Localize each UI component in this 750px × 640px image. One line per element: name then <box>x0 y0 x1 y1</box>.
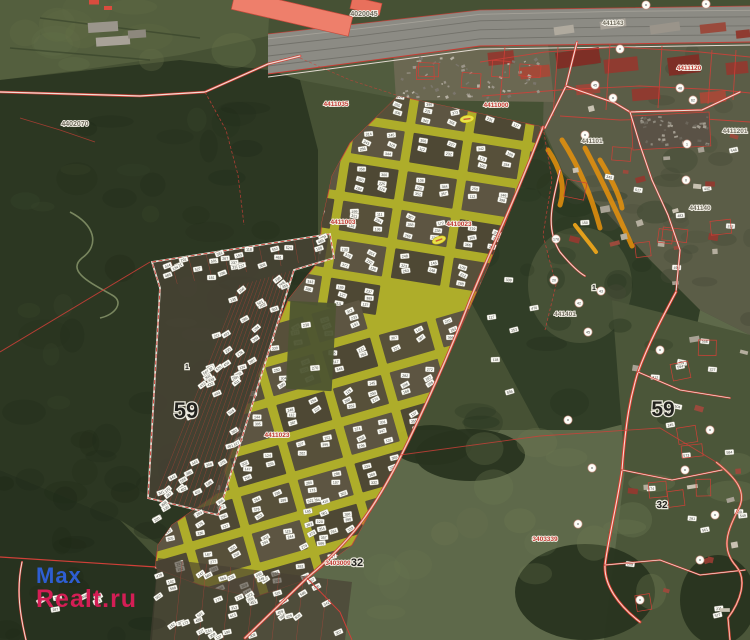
parcel-number: 267 <box>222 257 228 262</box>
parcel-tag: 314 <box>364 131 373 137</box>
parcel-number: 549 <box>740 514 746 519</box>
poi-marker-dot <box>567 419 569 421</box>
parcel-number: 232 <box>446 152 452 156</box>
poi-marker: 1 <box>683 140 691 148</box>
garage-roof <box>697 139 701 142</box>
parcel-number: 187 <box>205 552 211 557</box>
forest-texture <box>661 168 681 181</box>
parcel-tag: 245 <box>387 132 396 138</box>
building <box>89 0 99 5</box>
parcel-tag: 136 <box>373 226 382 232</box>
poi-marker-dot <box>612 97 614 99</box>
poi-marker <box>574 520 582 528</box>
forest-texture <box>10 19 41 46</box>
house-roof <box>705 181 715 186</box>
parcel-number: 366 <box>465 243 471 248</box>
parcel-number: 291 <box>689 517 695 522</box>
parcel-number: 389 <box>366 296 372 300</box>
poi-marker-dot <box>577 523 579 525</box>
parcel-tag: 108 <box>416 177 425 183</box>
poi-marker: 48 <box>676 84 684 92</box>
parcel-number: 357 <box>321 535 327 540</box>
forest-texture <box>134 522 167 540</box>
parcel-tag: 107 <box>331 480 340 485</box>
parcel-tag: 248 <box>400 253 409 259</box>
parcel-tag: 344 <box>383 151 392 157</box>
forest-texture <box>682 245 698 254</box>
forest-texture <box>632 258 652 272</box>
parcel-number: 300 <box>381 173 387 177</box>
forest-texture <box>156 129 193 144</box>
parcel-number: 272 <box>427 368 433 372</box>
forest-texture <box>90 501 118 522</box>
parcel-number: 314 <box>365 132 371 137</box>
parcel-tag: 524 <box>284 245 293 250</box>
forest-texture <box>53 486 77 510</box>
forest-texture <box>117 164 150 177</box>
parcel-number: 111 <box>377 213 383 217</box>
forest-texture <box>526 337 567 351</box>
poi-marker <box>656 346 664 354</box>
forest-texture <box>546 448 588 466</box>
poi-marker-dot <box>659 349 661 351</box>
parcel-number: 108 <box>418 179 424 183</box>
forest-texture <box>692 277 717 286</box>
parcel-number: 483 <box>677 214 683 218</box>
house-roof <box>720 608 730 612</box>
house-roof <box>413 66 417 69</box>
parcel-tag: 339 <box>504 277 513 283</box>
parcel-number: 339 <box>506 278 512 282</box>
forest-texture <box>367 605 406 620</box>
parcel-number: 282 <box>402 374 408 378</box>
parcel-number: 237 <box>231 261 237 265</box>
parcel-tag: 483 <box>676 213 685 219</box>
parcel-tag: 130 <box>340 246 349 252</box>
forest-texture <box>85 450 116 462</box>
quarter-code-label: 441140 <box>689 205 711 212</box>
parcel-tag: 291 <box>687 515 696 521</box>
house-roof <box>735 468 741 474</box>
forest-texture <box>455 403 497 419</box>
quarter-code-label: 3403009 <box>325 560 351 567</box>
forest-texture <box>231 140 263 157</box>
parcel-number: 112 <box>289 413 295 417</box>
poi-marker-dot <box>714 514 716 516</box>
house-roof <box>477 84 480 87</box>
poi-marker-dot <box>709 429 711 431</box>
building <box>128 29 147 38</box>
parcel-tag: 148 <box>429 260 439 266</box>
poi-marker-dot <box>699 559 701 561</box>
parcel-tag: 549 <box>738 513 747 519</box>
parcel-number: 262 <box>299 452 305 456</box>
poi-marker-dot <box>639 599 641 601</box>
poi-marker <box>588 464 596 472</box>
forest-texture <box>72 459 98 486</box>
building <box>89 0 99 5</box>
parcel-tag: 250 <box>470 186 479 192</box>
parcel-number: 245 <box>388 133 394 138</box>
poi-marker <box>636 596 644 604</box>
house-roof <box>407 72 411 73</box>
building <box>736 29 750 38</box>
poi-marker <box>696 556 704 564</box>
house-roof <box>735 468 741 474</box>
house-roof <box>467 95 470 98</box>
poi-marker-dot <box>645 4 647 6</box>
parcel-number: 524 <box>286 246 292 250</box>
parcel-number: 181 <box>209 276 215 280</box>
parcel-number: 120 <box>317 520 323 524</box>
district-label: 32 <box>656 500 668 511</box>
parcel-number: 344 <box>385 152 391 157</box>
parcel-tag: 118 <box>283 528 293 534</box>
parcel-number: 118 <box>246 248 252 252</box>
building <box>128 29 147 38</box>
garage-roof <box>706 116 708 118</box>
parcel-number: 266 <box>359 147 365 152</box>
parcel-tag: 150 <box>580 220 589 226</box>
house-roof <box>663 156 670 160</box>
garage-roof <box>668 125 670 128</box>
building <box>725 61 748 75</box>
parcel-number: 395 <box>255 422 261 426</box>
building <box>88 21 119 33</box>
house-roof <box>623 170 629 174</box>
parcel-number: 392 <box>297 564 303 569</box>
forest-texture <box>140 173 165 197</box>
garage-roof <box>658 116 662 118</box>
garage-roof <box>662 138 665 141</box>
poi-marker <box>642 1 650 9</box>
forest-texture <box>59 536 95 549</box>
poi-marker <box>564 416 572 424</box>
parcel-number: 248 <box>402 254 408 259</box>
forest-texture <box>2 400 46 425</box>
parcel-number: 263 <box>403 269 409 274</box>
poi-marker-dot <box>584 134 586 136</box>
poi-marker-dot <box>619 48 621 50</box>
parcel-tag: 384 <box>440 184 449 190</box>
forest-texture <box>200 130 218 163</box>
poi-marker-dot <box>684 469 686 471</box>
house-roof <box>507 90 510 91</box>
parcel-number: 584 <box>726 450 732 454</box>
parcel-number: 396 <box>322 443 328 448</box>
parcel-tag: 127 <box>487 314 497 320</box>
parcel-number: 307 <box>391 336 397 340</box>
large-parcel-ground <box>286 301 337 391</box>
parcel-number: 330 <box>272 346 278 351</box>
house-roof <box>440 57 443 59</box>
house-roof <box>416 96 419 98</box>
poi-marker: 178 <box>552 235 560 243</box>
parcel-tag: 307 <box>389 335 398 341</box>
building <box>104 6 112 10</box>
poi-marker: 45 <box>584 328 592 336</box>
parcel-tag: 147 <box>243 466 252 472</box>
garage-roof <box>706 116 708 118</box>
quarter-code-label: 3403339 <box>532 536 558 543</box>
quarter-code-label: 441401 <box>554 311 576 318</box>
parcel-tag: 262 <box>298 451 307 456</box>
house-roof <box>658 241 665 247</box>
parcel-tag: 493 <box>672 265 681 271</box>
house-roof <box>712 249 718 255</box>
forest-texture <box>102 188 136 208</box>
forest-texture <box>431 522 459 546</box>
parcel-tag: 396 <box>320 441 330 447</box>
parcel-tag: 112 <box>468 194 477 200</box>
forest-texture <box>60 319 84 353</box>
forest-texture <box>474 469 513 504</box>
forest-texture <box>606 284 626 301</box>
parcel-number: 346 <box>500 193 506 197</box>
parcel-tag: 277 <box>208 559 217 565</box>
house-roof <box>572 167 578 173</box>
quarter-code-label: 4411201 <box>723 128 748 135</box>
forest-texture <box>394 550 432 580</box>
poi-marker <box>681 466 689 474</box>
parcel-tag: 461 <box>274 255 283 260</box>
parcel-tag: 586 <box>316 540 326 546</box>
forest-texture <box>208 170 245 186</box>
forest-texture <box>550 389 589 418</box>
parcel-tag: 124 <box>263 453 272 459</box>
garage-roof <box>662 134 665 137</box>
parcel-number: 352 <box>415 192 421 197</box>
forest-texture <box>211 33 256 68</box>
poi-marker-number: 1 <box>686 142 688 146</box>
house-roof <box>572 167 578 173</box>
parcel-number: 398 <box>344 512 350 517</box>
garage-roof <box>697 139 701 142</box>
parcel-number: 118 <box>492 358 498 362</box>
forest-texture <box>111 482 140 503</box>
forest-texture <box>182 206 209 224</box>
forest-texture <box>466 432 504 465</box>
forest-texture <box>622 204 643 214</box>
poi-marker-number: 62 <box>691 98 695 102</box>
parcel-number: 396 <box>426 103 432 107</box>
parcel-tag: 118 <box>491 357 500 363</box>
garage-roof <box>640 121 644 124</box>
poi-marker-number: 178 <box>553 237 559 241</box>
building <box>487 50 514 66</box>
parcel-number: 127 <box>488 315 494 320</box>
building <box>632 87 661 101</box>
parcel-number: 250 <box>472 187 478 192</box>
quarter-code-label: 4020045 <box>350 11 377 18</box>
garage-roof <box>699 122 703 124</box>
parcel-tag: 389 <box>365 295 374 301</box>
garage-roof <box>650 143 652 145</box>
forest-texture <box>681 231 713 243</box>
parcel-number: 358 <box>359 167 365 171</box>
parcel-tag: 392 <box>296 563 306 569</box>
building <box>725 61 748 75</box>
forest-texture <box>547 247 576 265</box>
house-roof <box>720 608 730 612</box>
parcel-tag: 388 <box>406 221 415 227</box>
district-label: 1 <box>185 364 189 371</box>
poi-marker <box>609 94 617 102</box>
forest-texture <box>456 508 488 539</box>
parcel-tag: 395 <box>253 421 262 426</box>
parcel-number: 238 <box>434 229 440 234</box>
parcel-number: 313 <box>727 224 733 228</box>
large-parcel-block <box>286 301 337 391</box>
parcel-number: 332 <box>371 480 377 485</box>
parcel-tag: 300 <box>380 172 389 178</box>
garage-roof <box>662 134 665 137</box>
district-label: 32 <box>351 557 363 569</box>
garage-roof <box>640 121 644 124</box>
quarter-code-label: 441143 <box>602 20 624 27</box>
building <box>88 21 119 33</box>
house-roof <box>467 95 470 98</box>
forest-texture <box>520 263 534 276</box>
house-roof <box>416 96 419 98</box>
garage-roof <box>699 122 703 124</box>
parcel-number: 342 <box>478 147 484 151</box>
parcel-number: 107 <box>333 481 339 485</box>
parcel-tag: 173 <box>308 487 318 493</box>
parcel-tag: 181 <box>207 275 216 281</box>
district-label: 1 <box>592 285 596 292</box>
parcel-number: 118 <box>285 529 291 534</box>
poi-marker: 62 <box>689 96 697 104</box>
poi-marker <box>711 511 719 519</box>
poi-marker-dot <box>705 3 707 5</box>
parcel-tag: 237 <box>229 260 238 266</box>
garage-roof <box>703 125 707 129</box>
forest-texture <box>16 469 45 491</box>
garage-roof <box>692 127 696 129</box>
parcel-tag: 238 <box>433 227 443 233</box>
quarter-code-label: 4411023 <box>265 432 290 439</box>
parcel-tag: 263 <box>401 267 411 273</box>
parcel-number: 124 <box>265 454 271 458</box>
parcel-number: 280 <box>306 481 312 486</box>
parcel-tag: 187 <box>203 551 213 557</box>
house-roof <box>663 156 670 160</box>
parcel-number: 150 <box>582 221 588 225</box>
poi-marker-number: 43 <box>599 289 603 293</box>
forest-texture <box>43 343 60 366</box>
poi-marker-number: 45 <box>593 83 597 87</box>
poi-marker-number: 48 <box>678 86 682 90</box>
parcel-tag: 145 <box>367 380 376 386</box>
garage-roof <box>668 125 670 128</box>
house-roof <box>712 249 718 255</box>
poi-marker-dot <box>591 467 593 469</box>
parcel-tag: 366 <box>463 242 472 248</box>
satellite-map[interactable]: 2833073492412192741983592673712623242701… <box>0 0 750 640</box>
parcel-number: 277 <box>210 560 216 565</box>
forest-texture <box>142 206 159 223</box>
parcel-tag: 357 <box>319 534 328 540</box>
parcel-tag: 332 <box>369 479 378 485</box>
parcel-tag: 232 <box>444 151 453 157</box>
parcel-tag: 358 <box>357 166 366 171</box>
parcel-tag: 352 <box>413 191 422 197</box>
parcel-tag: 266 <box>358 146 368 152</box>
forest-patch <box>515 544 655 640</box>
parcel-tag: 280 <box>304 480 314 486</box>
forest-texture <box>31 202 54 212</box>
forest-texture <box>185 222 233 242</box>
house-roof <box>407 72 411 73</box>
parcel-tag: 144 <box>252 414 261 419</box>
parcel-tag: 230 <box>301 322 311 329</box>
forest-texture <box>252 221 280 240</box>
map-screenshot: 2833073492412192741983592673712623242701… <box>0 0 750 640</box>
garage-roof <box>703 125 707 129</box>
parcel-number: 461 <box>276 256 282 260</box>
poi-marker <box>616 45 624 53</box>
parcel-tag: 327 <box>708 366 717 372</box>
parcel-number: 501 <box>211 259 217 264</box>
poi-marker-number: 45 <box>586 330 590 334</box>
forest-texture <box>47 396 70 410</box>
parcel-tag: 267 <box>220 255 229 261</box>
house-roof <box>658 241 665 247</box>
poi-marker-number: 20 <box>552 278 556 282</box>
parcel-tag: 330 <box>270 345 279 351</box>
district-label: 59 <box>174 398 198 423</box>
parcel-tag: 270 <box>310 365 320 371</box>
house-roof <box>623 170 629 174</box>
building <box>736 29 750 38</box>
parcel-number: 173 <box>309 488 315 493</box>
parcel-tag: 189 <box>336 284 346 290</box>
parcel-number: 148 <box>430 261 436 266</box>
parcel-tag: 282 <box>401 373 410 379</box>
garage-roof <box>650 143 652 145</box>
poi-marker: 20 <box>550 276 558 284</box>
parcel-tag: 342 <box>476 146 485 152</box>
forest-texture <box>105 255 135 282</box>
parcel-number: 117 <box>333 360 339 364</box>
garage-roof <box>662 138 665 141</box>
poi-marker <box>702 0 710 8</box>
garage-roof <box>664 129 666 131</box>
house-roof <box>731 541 739 548</box>
parcel-tag: 120 <box>315 519 324 524</box>
forest-texture <box>504 508 536 533</box>
parcel-number: 586 <box>318 541 324 546</box>
forest-texture <box>221 102 271 115</box>
forest-texture <box>363 554 400 586</box>
house-roof <box>731 541 739 548</box>
district-label: 59 <box>651 398 674 421</box>
parcel-tag: 501 <box>209 258 218 264</box>
forest-texture <box>58 57 90 71</box>
garage-roof <box>664 129 666 131</box>
parcel-number: 304 <box>280 376 286 380</box>
house-roof <box>705 181 715 186</box>
forest-texture <box>609 319 632 333</box>
poi-marker: 43 <box>597 287 605 295</box>
parcel-number: 136 <box>374 227 380 231</box>
quarter-code-label: 4411120 <box>677 65 702 72</box>
building <box>104 6 112 10</box>
poi-marker: 0 <box>682 176 690 184</box>
house-roof <box>477 84 480 87</box>
quarter-code-label: 4411035 <box>324 101 349 108</box>
